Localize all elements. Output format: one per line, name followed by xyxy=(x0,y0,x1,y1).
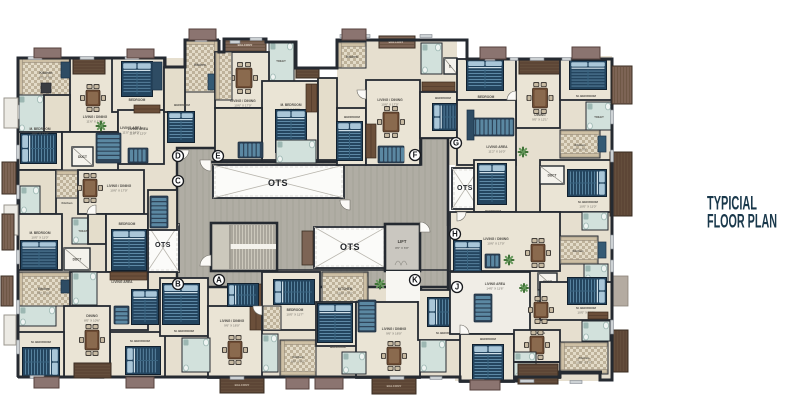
svg-text:Kitchen: Kitchen xyxy=(61,201,72,205)
svg-text:LIVING / DINING: LIVING / DINING xyxy=(483,237,509,241)
svg-text:10′0″ X 11′0″: 10′0″ X 11′0″ xyxy=(31,236,49,240)
svg-text:LIVING / DINING: LIVING / DINING xyxy=(382,327,407,331)
svg-text:LIVING AREA: LIVING AREA xyxy=(120,126,142,130)
svg-text:M. BEDROOM: M. BEDROOM xyxy=(280,103,301,107)
svg-text:BEDROOM: BEDROOM xyxy=(174,103,190,107)
svg-text:M. BEDROOM: M. BEDROOM xyxy=(576,306,596,310)
svg-text:C: C xyxy=(175,177,181,186)
svg-text:BEDROOM: BEDROOM xyxy=(435,96,451,100)
svg-text:10′6″ X 17′0″: 10′6″ X 17′0″ xyxy=(110,189,128,193)
svg-text:M. BEDROOM: M. BEDROOM xyxy=(576,94,596,98)
svg-text:BALCONY: BALCONY xyxy=(235,383,250,387)
svg-text:M. BEDROOM: M. BEDROOM xyxy=(174,329,194,333)
svg-text:Kitchen: Kitchen xyxy=(292,355,303,359)
svg-text:FLOOR PLAN: FLOOR PLAN xyxy=(707,212,777,233)
svg-text:10′6″ X 17′0″: 10′6″ X 17′0″ xyxy=(487,242,505,246)
svg-text:M. BEDROOM: M. BEDROOM xyxy=(31,340,51,344)
svg-text:TOILET: TOILET xyxy=(276,59,286,63)
svg-text:10′0″ X 7′0″: 10′0″ X 7′0″ xyxy=(576,361,593,365)
svg-text:10′0″ X 11′7″: 10′0″ X 11′7″ xyxy=(286,313,304,317)
svg-text:LIVING AREA: LIVING AREA xyxy=(486,145,508,149)
svg-text:9′0″ X 8′0″: 9′0″ X 8′0″ xyxy=(39,76,54,80)
svg-text:14′0″ X 11′6″: 14′0″ X 11′6″ xyxy=(486,287,504,291)
svg-text:G: G xyxy=(453,139,459,148)
svg-text:BEDROOM: BEDROOM xyxy=(287,308,304,312)
svg-text:LIVING / DINING: LIVING / DINING xyxy=(220,319,245,323)
svg-text:K: K xyxy=(412,276,418,285)
svg-text:KITCHEN: KITCHEN xyxy=(338,287,353,291)
svg-text:8′0″ X 10′6″: 8′0″ X 10′6″ xyxy=(84,319,101,323)
svg-text:Kitchen: Kitchen xyxy=(346,55,358,59)
svg-text:LIVING / DINING: LIVING / DINING xyxy=(230,99,256,103)
svg-text:LIVING AREA: LIVING AREA xyxy=(111,280,133,284)
svg-text:LIVING AREA: LIVING AREA xyxy=(485,282,506,286)
svg-text:F: F xyxy=(413,151,418,160)
svg-text:M. BEDROOM: M. BEDROOM xyxy=(130,339,150,343)
svg-text:A: A xyxy=(216,276,222,285)
svg-text:Kitchen: Kitchen xyxy=(194,63,206,67)
svg-text:OTS: OTS xyxy=(155,242,171,249)
svg-text:BEDROOM: BEDROOM xyxy=(478,95,495,99)
svg-text:LIFT: LIFT xyxy=(398,239,407,244)
svg-text:DUCT: DUCT xyxy=(548,174,557,178)
svg-text:M. BEDROOM: M. BEDROOM xyxy=(578,200,598,204)
svg-text:BALCONY: BALCONY xyxy=(387,384,402,388)
svg-text:9′0″ X 12′1″: 9′0″ X 12′1″ xyxy=(532,118,549,122)
svg-text:10′6″ X 17′0″: 10′6″ X 17′0″ xyxy=(234,104,252,108)
svg-text:M. BEDROOM: M. BEDROOM xyxy=(29,231,50,235)
svg-text:M. BEDROOM: M. BEDROOM xyxy=(29,127,50,131)
svg-text:DUCT: DUCT xyxy=(78,155,87,159)
svg-text:D.: D. xyxy=(449,65,452,69)
svg-text:9′6″ X 16′0″: 9′6″ X 16′0″ xyxy=(386,332,403,336)
svg-text:J: J xyxy=(455,283,459,292)
svg-text:DINING: DINING xyxy=(86,314,98,318)
svg-text:10′0″ X 7′0″: 10′0″ X 7′0″ xyxy=(337,292,354,296)
svg-text:8′6″ X 6′8″: 8′6″ X 6′8″ xyxy=(395,246,409,250)
svg-text:11′0″ X 16′0″: 11′0″ X 16′0″ xyxy=(122,131,140,135)
svg-text:BEDROOM: BEDROOM xyxy=(330,345,346,349)
svg-text:10′0″ X 11′0″: 10′0″ X 11′0″ xyxy=(579,205,597,209)
svg-text:LIVING / DINING: LIVING / DINING xyxy=(107,184,132,188)
svg-text:Kitchen: Kitchen xyxy=(38,287,50,291)
svg-text:9′6″ X 16′0″: 9′6″ X 16′0″ xyxy=(224,324,241,328)
svg-text:OTS: OTS xyxy=(340,242,360,252)
svg-text:11′2″ X 16′0″: 11′2″ X 16′0″ xyxy=(488,150,506,154)
svg-text:H: H xyxy=(452,230,458,239)
svg-text:E: E xyxy=(215,152,220,161)
svg-text:BEDROOM: BEDROOM xyxy=(344,115,360,119)
svg-text:D: D xyxy=(175,152,181,161)
svg-text:8′0″ X 9′0″: 8′0″ X 9′0″ xyxy=(291,360,306,364)
svg-text:TOILET: TOILET xyxy=(594,115,604,119)
svg-text:LIVING / DINING: LIVING / DINING xyxy=(83,115,108,119)
svg-text:7′0″ X 9′0″: 7′0″ X 9′0″ xyxy=(37,292,52,296)
svg-text:BEDROOM: BEDROOM xyxy=(129,98,146,102)
svg-text:8′0″ X 9′0″: 8′0″ X 9′0″ xyxy=(573,148,588,152)
svg-text:Kitchen: Kitchen xyxy=(572,249,583,253)
svg-text:Kitchen: Kitchen xyxy=(574,143,585,147)
svg-text:TOILET: TOILET xyxy=(78,229,88,233)
svg-text:BEDROOM: BEDROOM xyxy=(480,337,496,341)
svg-text:BEDROOM: BEDROOM xyxy=(119,222,136,226)
svg-text:Kitchen: Kitchen xyxy=(39,71,52,75)
svg-text:OTS: OTS xyxy=(457,185,473,192)
svg-text:OTS: OTS xyxy=(268,178,288,188)
svg-text:DUCT: DUCT xyxy=(73,258,82,262)
svg-text:B: B xyxy=(175,280,181,289)
svg-text:Kitchen: Kitchen xyxy=(578,356,589,360)
svg-text:LIVING / DINING: LIVING / DINING xyxy=(377,98,403,102)
svg-text:10′0″ X 12′0″: 10′0″ X 12′0″ xyxy=(31,132,49,136)
